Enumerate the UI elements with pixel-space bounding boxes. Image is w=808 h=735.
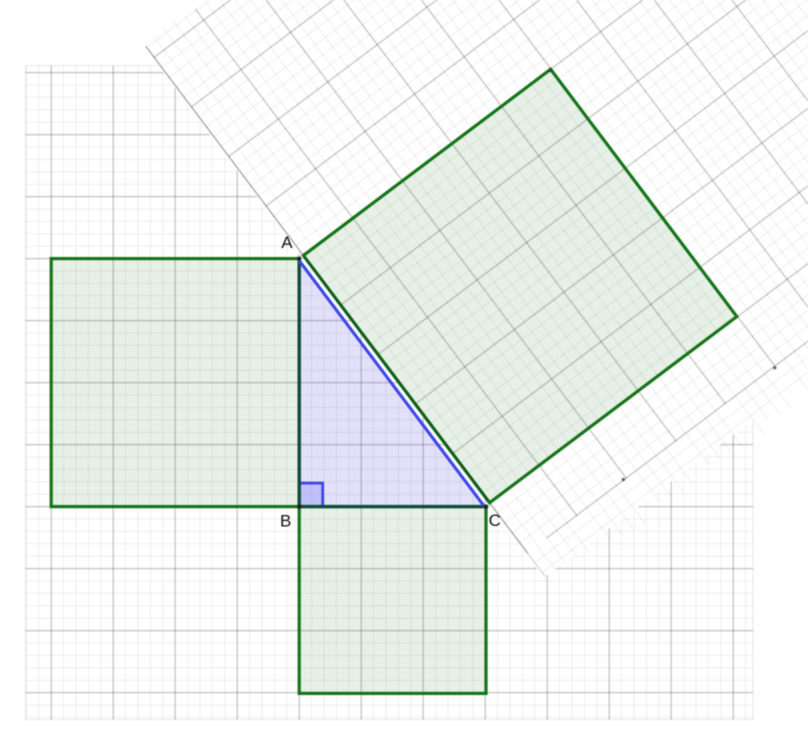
svg-text:B: B	[280, 511, 291, 530]
svg-text:C: C	[489, 511, 501, 530]
svg-text:A: A	[281, 233, 293, 252]
